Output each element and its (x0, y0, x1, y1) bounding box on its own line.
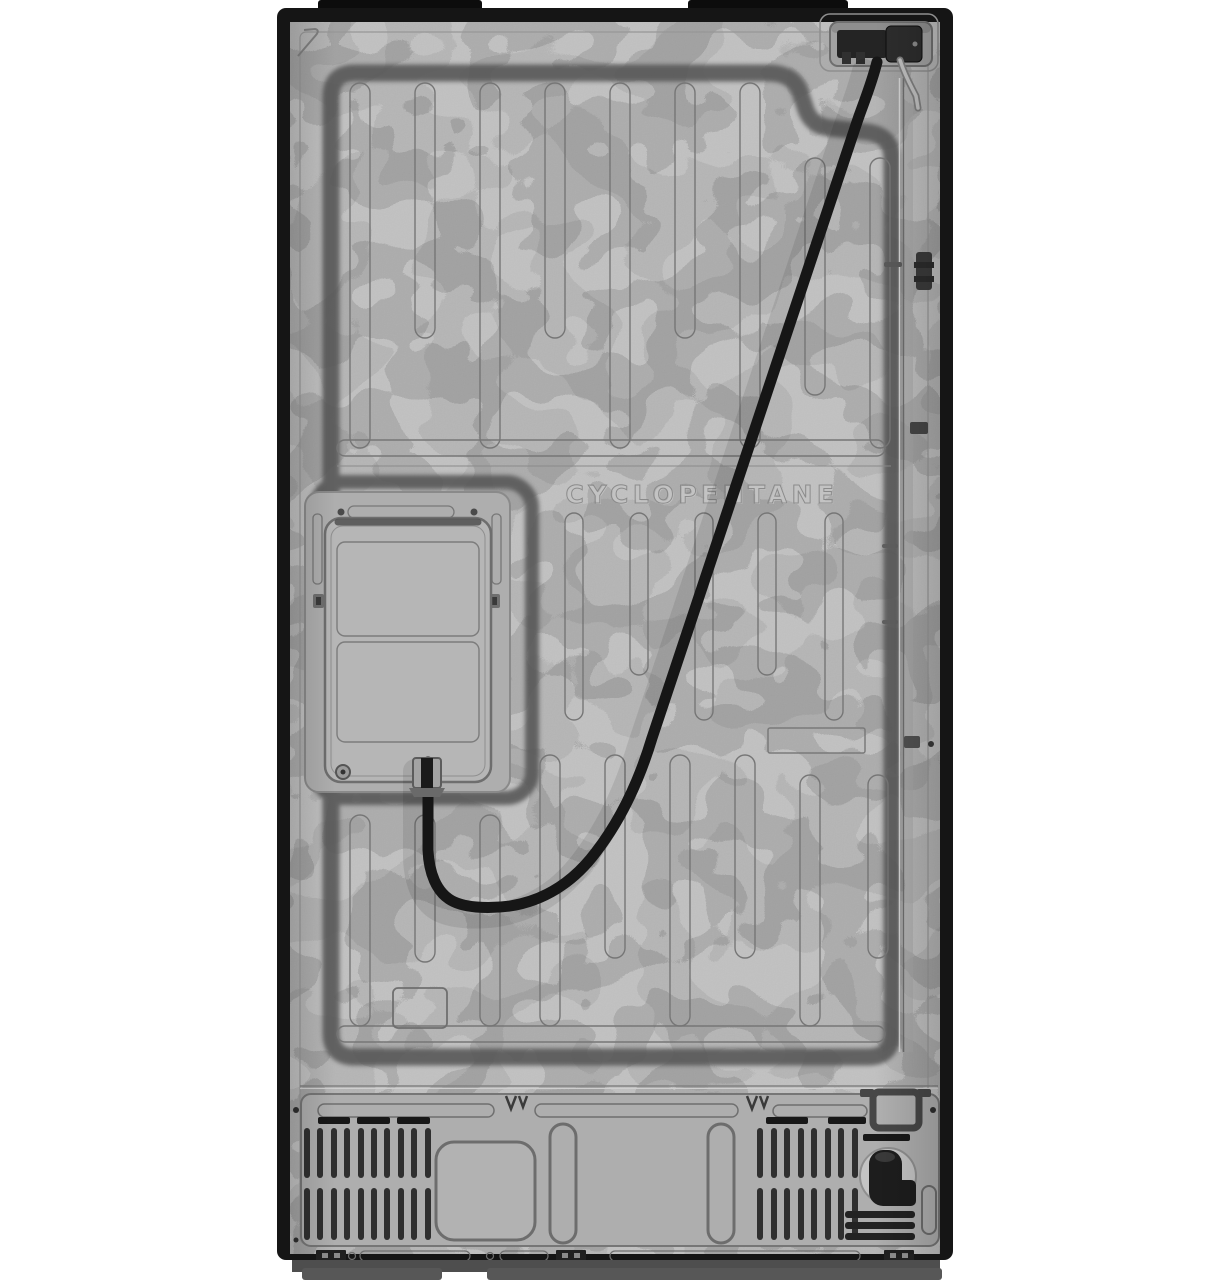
base-feet (292, 1260, 942, 1280)
lighting-shade (290, 22, 940, 1254)
refrigerator-rear-view: CYCLOPENTANE CYCLOPENTANE (0, 0, 1229, 1280)
